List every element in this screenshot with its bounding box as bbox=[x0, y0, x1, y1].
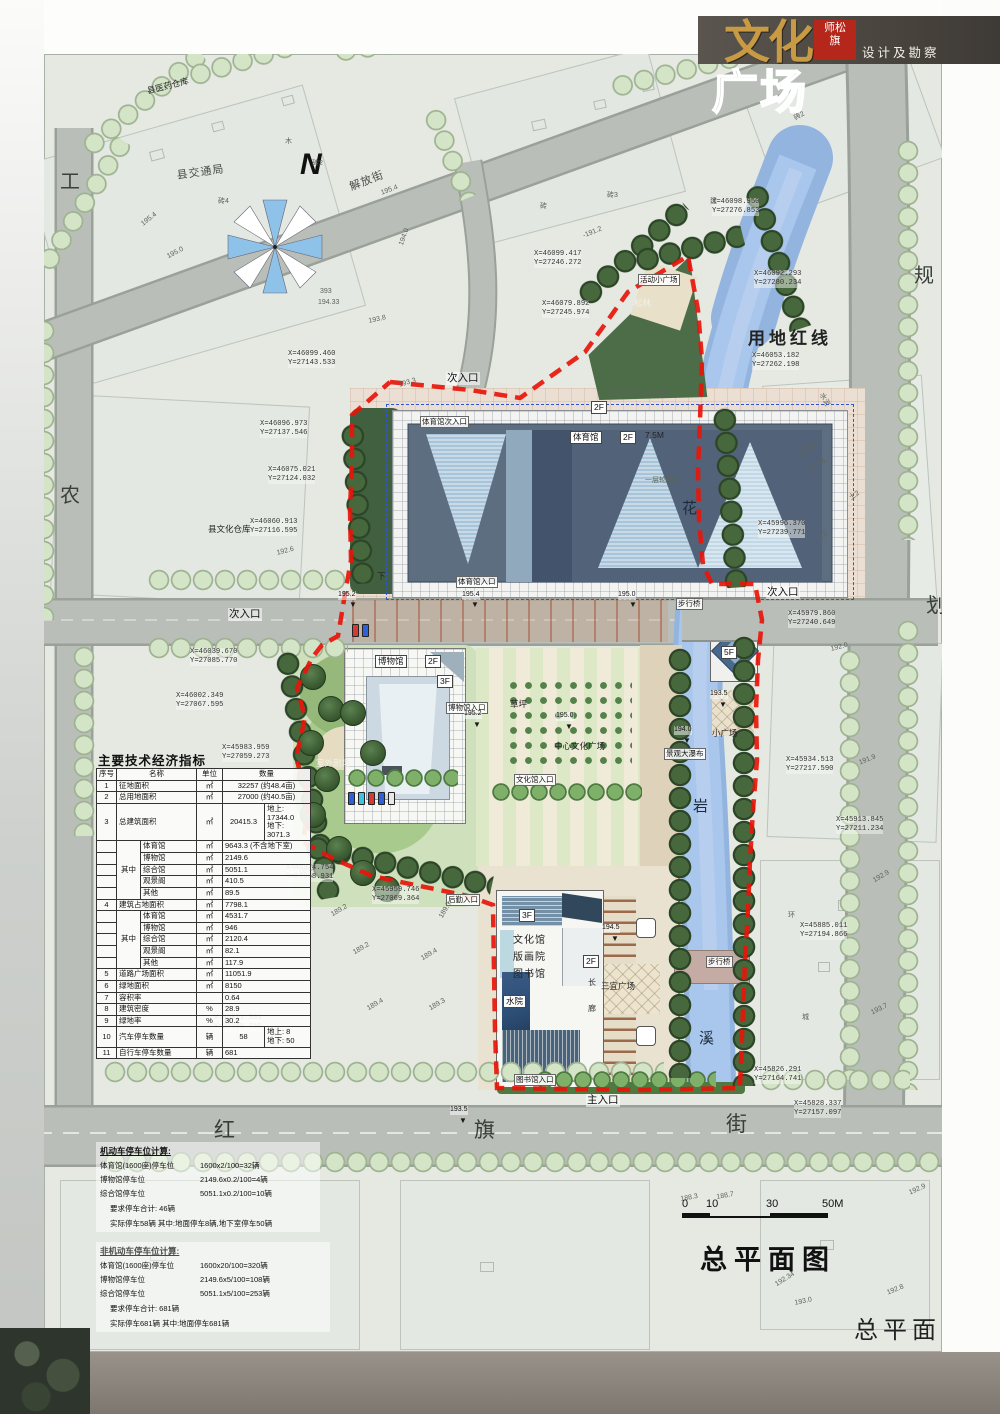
parking-line: 博物馆停车位2149.6x0.2/100=4辆 bbox=[100, 1174, 316, 1185]
parking-text: 2149.6x0.2/100=4辆 bbox=[200, 1174, 268, 1185]
sanyi-plaza bbox=[598, 964, 660, 1014]
tree bbox=[374, 876, 400, 902]
tec-cell: 总用地面积 bbox=[117, 792, 197, 804]
pergola-north bbox=[602, 896, 636, 968]
tec-cell bbox=[97, 946, 117, 958]
pavilion bbox=[636, 918, 656, 938]
tec-cell: 11051.9 bbox=[223, 969, 311, 981]
parking-text: 体育馆(1600座)停车位 bbox=[100, 1160, 200, 1171]
parking-line: 综合馆停车位5051.1x0.2/100=10辆 bbox=[100, 1188, 316, 1199]
tree-grid bbox=[506, 678, 632, 764]
gymnasium-roof bbox=[398, 418, 842, 590]
parking-line: 体育馆(1600座)停车位1600x20/100=320辆 bbox=[100, 1260, 326, 1271]
tec-cell: 8150 bbox=[223, 980, 311, 992]
entry-paving-band bbox=[352, 600, 668, 642]
tec-cell: 3 bbox=[97, 803, 117, 841]
tec-cell: 5051.1 bbox=[223, 864, 311, 876]
tree bbox=[350, 860, 376, 886]
parking-text: 1600x20/100=320辆 bbox=[200, 1260, 268, 1271]
car-icon bbox=[352, 624, 359, 637]
motor-parking-total: 要求停车合计: 46辆 bbox=[110, 1203, 316, 1214]
car-icon bbox=[378, 792, 385, 805]
bottom-band bbox=[0, 1352, 1000, 1414]
cultural-center-glass bbox=[500, 930, 514, 978]
tec-cell: 32257 (约48.4亩) bbox=[223, 780, 311, 792]
tec-cell: 6 bbox=[97, 980, 117, 992]
tree bbox=[360, 740, 386, 766]
parking-line: 博物馆停车位2149.6x5/100=108辆 bbox=[100, 1274, 326, 1285]
tec-cell: 地上: 8 地下: 50 bbox=[265, 1027, 311, 1047]
tec-cell: ㎡ bbox=[197, 969, 223, 981]
tec-cell: 20415.3 bbox=[223, 803, 265, 841]
tec-cell: 综合馆 bbox=[141, 934, 197, 946]
tec-cell: 观景阁 bbox=[141, 946, 197, 958]
tec-cell: 总建筑面积 bbox=[117, 803, 197, 841]
tec-cell bbox=[97, 864, 117, 876]
scale-bar-segment bbox=[770, 1213, 828, 1218]
tec-cell: ㎡ bbox=[197, 934, 223, 946]
tec-cell: 辆 bbox=[197, 1047, 223, 1059]
tec-cell: 绿地率 bbox=[117, 1015, 197, 1027]
tec-cell: 7798.1 bbox=[223, 899, 311, 911]
tec-cell: 序号 bbox=[97, 769, 117, 781]
tree bbox=[326, 836, 352, 862]
tec-cell: 征地面积 bbox=[117, 780, 197, 792]
tec-cell: 其他 bbox=[141, 957, 197, 969]
tec-cell: ㎡ bbox=[197, 980, 223, 992]
scale-tick: 50M bbox=[822, 1198, 843, 1210]
nonmotor-parking-title: 非机动车停车位计算: bbox=[100, 1245, 326, 1257]
tree-row bbox=[897, 620, 919, 1090]
cultural-center-roof-north bbox=[502, 896, 562, 926]
tec-cell: 单位 bbox=[197, 769, 223, 781]
parking-text: 1600x2/100=32辆 bbox=[200, 1160, 259, 1171]
tec-cell: 名称 bbox=[117, 769, 197, 781]
tec-cell: 2120.4 bbox=[223, 934, 311, 946]
tec-cell bbox=[97, 957, 117, 969]
motor-parking-title: 机动车停车位计算: bbox=[100, 1145, 316, 1157]
tec-cell: 辆 bbox=[197, 1027, 223, 1047]
tree-row bbox=[148, 569, 348, 591]
tec-cell: 自行车停车数量 bbox=[117, 1047, 197, 1059]
tec-cell: 博物馆 bbox=[141, 853, 197, 865]
tec-cell: 5 bbox=[97, 969, 117, 981]
header-subtitle: 设计及勘察 bbox=[862, 42, 940, 61]
tree-row-green bbox=[492, 783, 642, 801]
tree-row bbox=[73, 646, 95, 836]
car-icon bbox=[388, 792, 395, 805]
nonmotor-parking-actual: 实际停车681辆 其中:地面停车681辆 bbox=[110, 1318, 326, 1329]
tec-cell: 其他 bbox=[141, 887, 197, 899]
car-icon bbox=[362, 624, 369, 637]
parking-text: 5051.1x5/100=253辆 bbox=[200, 1288, 270, 1299]
tree bbox=[298, 730, 324, 756]
tree bbox=[314, 766, 340, 792]
tec-cell: 数量 bbox=[223, 769, 311, 781]
tec-cell: 28.9 bbox=[223, 1004, 311, 1016]
tec-cell: 2 bbox=[97, 792, 117, 804]
tec-cell bbox=[97, 853, 117, 865]
tec-table-title: 主要技术经济指标 bbox=[98, 750, 206, 769]
parking-text: 综合馆停车位 bbox=[100, 1288, 200, 1299]
title-header-bar: 文化 师松 旗 设计及勘察 bbox=[698, 16, 1000, 64]
tec-cell: ㎡ bbox=[197, 792, 223, 804]
tec-cell: % bbox=[197, 1004, 223, 1016]
car-icon bbox=[358, 792, 365, 805]
scale-tick: 30 bbox=[766, 1198, 778, 1210]
tec-cell: 946 bbox=[223, 922, 311, 934]
right-margin bbox=[942, 0, 1000, 1352]
water-court-pool bbox=[502, 972, 530, 1032]
parking-text: 综合馆停车位 bbox=[100, 1188, 200, 1199]
parking-line: 综合馆停车位5051.1x5/100=253辆 bbox=[100, 1288, 326, 1299]
tec-cell: 681 bbox=[223, 1047, 311, 1059]
tec-cell: 体育馆 bbox=[141, 911, 197, 923]
parking-row bbox=[352, 624, 372, 642]
tec-cell: 绿地面积 bbox=[117, 980, 197, 992]
tec-cell: 10 bbox=[97, 1027, 117, 1047]
tec-cell: 建筑密度 bbox=[117, 1004, 197, 1016]
parking-text: 5051.1x0.2/100=10辆 bbox=[200, 1188, 272, 1199]
tec-cell: 4531.7 bbox=[223, 911, 311, 923]
scale-bar-segment bbox=[682, 1213, 710, 1218]
logo-wenhua: 文化 bbox=[724, 6, 812, 72]
tec-cell bbox=[97, 876, 117, 888]
parking-row bbox=[348, 792, 398, 810]
tec-cell: 其中 bbox=[117, 911, 141, 969]
tec-cell: 博物馆 bbox=[141, 922, 197, 934]
tec-cell: 汽车停车数量 bbox=[117, 1027, 197, 1047]
compass-rose bbox=[225, 185, 325, 300]
parking-text: 博物馆停车位 bbox=[100, 1174, 200, 1185]
tec-cell: 58 bbox=[223, 1027, 265, 1047]
tec-cell: 地上: 17344.0 地下: 3071.3 bbox=[265, 803, 311, 841]
tec-cell: 9 bbox=[97, 1015, 117, 1027]
tec-cell bbox=[97, 841, 117, 853]
tec-cell: ㎡ bbox=[197, 876, 223, 888]
tec-cell: 89.5 bbox=[223, 887, 311, 899]
tec-cell: 9643.3 (不含地下室) bbox=[223, 841, 311, 853]
tec-cell: 0.64 bbox=[223, 992, 311, 1004]
car-icon bbox=[348, 792, 355, 805]
nonmotor-parking-total: 要求停车合计: 681辆 bbox=[110, 1303, 326, 1314]
tec-cell: ㎡ bbox=[197, 922, 223, 934]
parking-text: 2149.6x5/100=108辆 bbox=[200, 1274, 270, 1285]
tree-row bbox=[897, 140, 919, 540]
tec-cell: 1 bbox=[97, 780, 117, 792]
margin-title: 总平面 bbox=[854, 1310, 941, 1345]
tec-cell: 其中 bbox=[117, 841, 141, 899]
tec-cell: 观景阁 bbox=[141, 876, 197, 888]
tec-cell: 体育馆 bbox=[141, 841, 197, 853]
tec-cell: 30.2 bbox=[223, 1015, 311, 1027]
tec-cell: 7 bbox=[97, 992, 117, 1004]
nonmotor-parking-rows: 体育馆(1600座)停车位1600x20/100=320辆博物馆停车位2149.… bbox=[100, 1260, 326, 1299]
tec-cell bbox=[197, 992, 223, 1004]
tec-cell: 道路广场面积 bbox=[117, 969, 197, 981]
tec-cell: ㎡ bbox=[197, 957, 223, 969]
nonmotor-parking-calc: 非机动车停车位计算: 体育馆(1600座)停车位1600x20/100=320辆… bbox=[96, 1242, 330, 1332]
tec-cell: ㎡ bbox=[197, 899, 223, 911]
motor-parking-calc: 机动车停车位计算: 体育馆(1600座)停车位1600x2/100=32辆博物馆… bbox=[96, 1142, 320, 1232]
tree bbox=[300, 664, 326, 690]
tec-cell: 建筑占地面积 bbox=[117, 899, 197, 911]
motor-parking-actual: 实际停车58辆 其中:地面停车8辆,地下室停车50辆 bbox=[110, 1218, 316, 1229]
parking-text: 体育馆(1600座)停车位 bbox=[100, 1260, 200, 1271]
cultural-center-east-wing bbox=[562, 928, 602, 986]
tec-cell: 4 bbox=[97, 899, 117, 911]
parking-line: 体育馆(1600座)停车位1600x2/100=32辆 bbox=[100, 1160, 316, 1171]
tec-cell bbox=[97, 934, 117, 946]
company-stamp: 师松 旗 bbox=[814, 20, 856, 60]
tec-cell bbox=[97, 922, 117, 934]
tec-cell: ㎡ bbox=[197, 946, 223, 958]
tree bbox=[340, 700, 366, 726]
scale-tick: 10 bbox=[706, 1198, 718, 1210]
tree-row bbox=[839, 650, 861, 1080]
tec-cell: ㎡ bbox=[197, 864, 223, 876]
tec-cell: ㎡ bbox=[197, 803, 223, 841]
scale-bar: 0 10 30 50M bbox=[682, 1198, 852, 1226]
tec-cell: % bbox=[197, 1015, 223, 1027]
tec-cell: 11 bbox=[97, 1047, 117, 1059]
tec-table: 序号名称单位数量1征地面积㎡32257 (约48.4亩)2总用地面积㎡27000… bbox=[96, 768, 311, 1059]
tec-cell: ㎡ bbox=[197, 780, 223, 792]
tree-row-dark bbox=[732, 636, 756, 1086]
tree-row bbox=[148, 637, 348, 659]
tec-cell: ㎡ bbox=[197, 853, 223, 865]
tree-row-dark bbox=[668, 648, 692, 1078]
tec-cell: 综合馆 bbox=[141, 864, 197, 876]
left-margin bbox=[0, 0, 44, 1414]
tec-cell: 27000 (约40.5亩) bbox=[223, 792, 311, 804]
tec-cell: ㎡ bbox=[197, 841, 223, 853]
plan-title: 总平面图 bbox=[700, 1238, 836, 1277]
tec-cell: 2149.6 bbox=[223, 853, 311, 865]
tec-cell: ㎡ bbox=[197, 911, 223, 923]
motor-parking-rows: 体育馆(1600座)停车位1600x2/100=32辆博物馆停车位2149.6x… bbox=[100, 1160, 316, 1199]
tree-row bbox=[760, 1069, 910, 1091]
parking-text: 博物馆停车位 bbox=[100, 1274, 200, 1285]
tec-cell bbox=[97, 911, 117, 923]
car-icon bbox=[368, 792, 375, 805]
tec-cell: 8 bbox=[97, 1004, 117, 1016]
corner-photo bbox=[0, 1328, 90, 1414]
tec-cell: 82.1 bbox=[223, 946, 311, 958]
tree-row-green bbox=[348, 769, 458, 787]
tec-cell: 117.9 bbox=[223, 957, 311, 969]
tec-cell bbox=[97, 887, 117, 899]
tec-cell: ㎡ bbox=[197, 887, 223, 899]
tec-cell: 410.5 bbox=[223, 876, 311, 888]
scale-tick: 0 bbox=[682, 1198, 688, 1210]
site-plan-page: 工农规划红旗街解放街N县交通局县医药仓库县文化仓库用地红线次入口次入口次入口主入… bbox=[0, 0, 1000, 1414]
tec-cell: 容积率 bbox=[117, 992, 197, 1004]
pavilion bbox=[636, 1026, 656, 1046]
